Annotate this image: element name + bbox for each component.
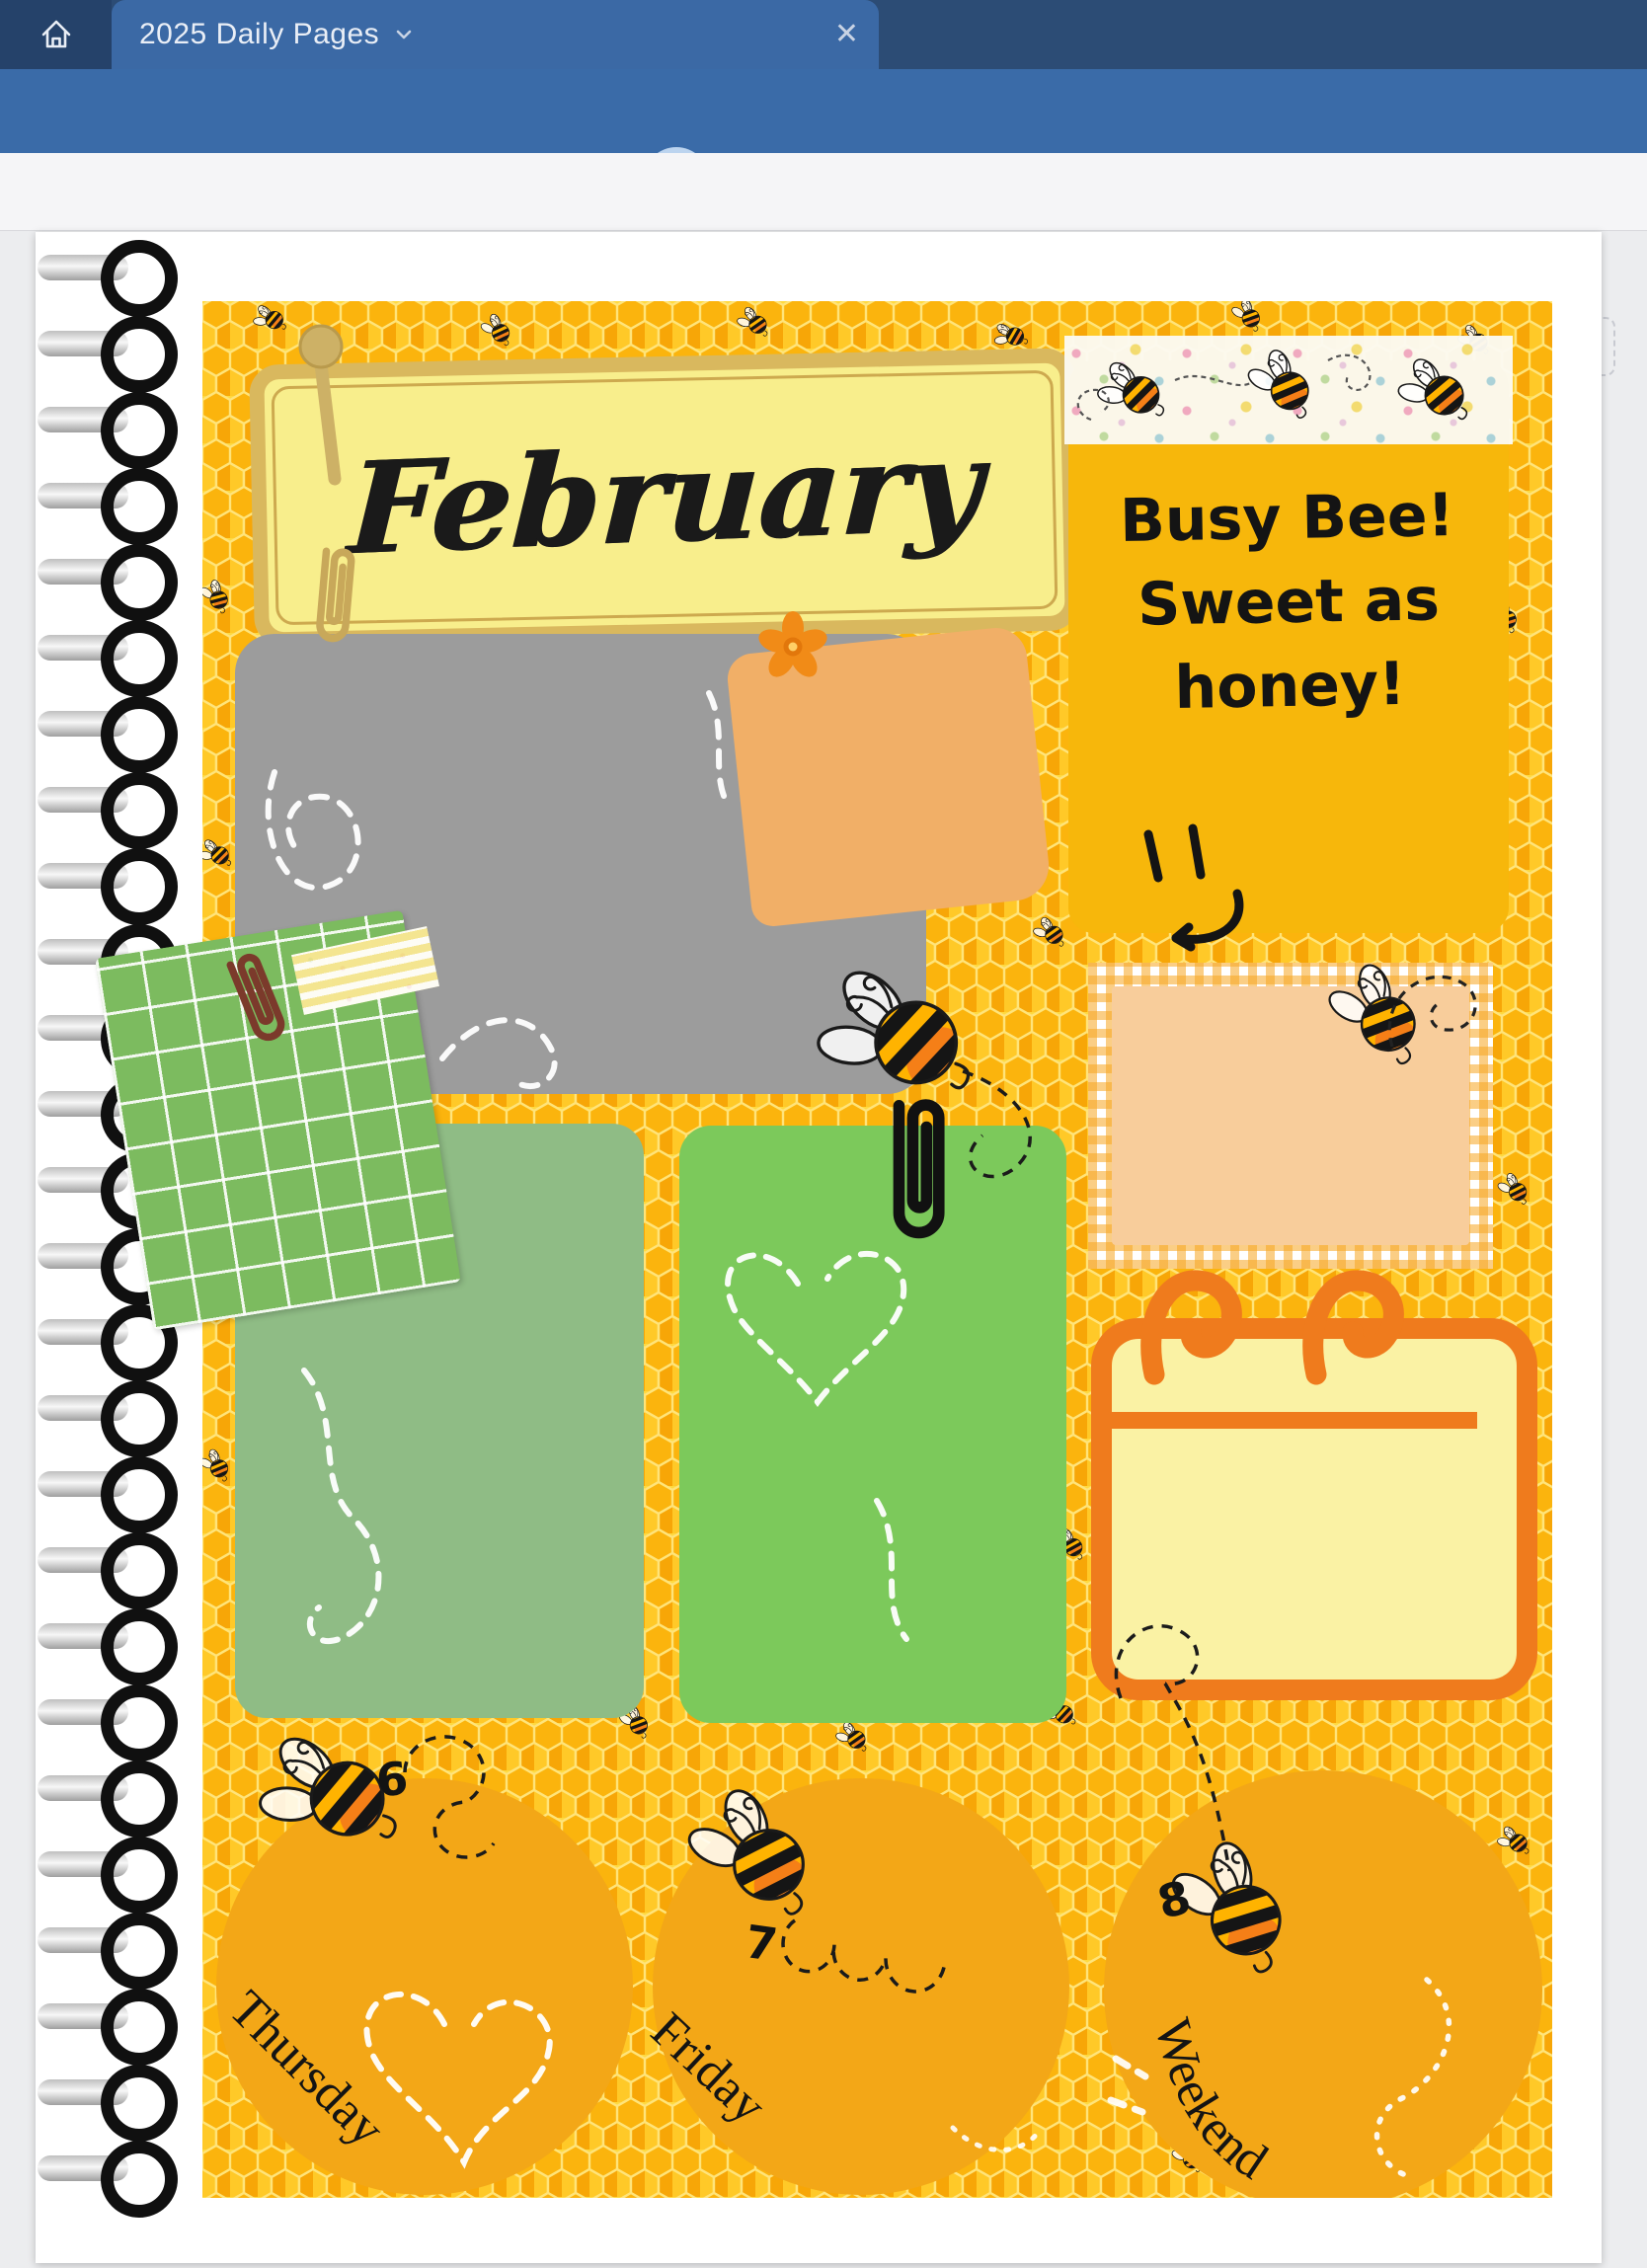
peach-sticky-note[interactable]	[725, 625, 1052, 928]
spiral-ring	[38, 2065, 166, 2120]
month-title-banner[interactable]: February	[249, 348, 1080, 647]
main-toolbar	[0, 69, 1647, 153]
spiral-ring	[38, 1837, 166, 1892]
spiral-ring	[38, 1456, 166, 1512]
spiral-ring	[38, 1380, 166, 1436]
gingham-note-inner	[1112, 986, 1469, 1245]
document-tab[interactable]: 2025 Daily Pages ✕	[112, 0, 879, 69]
month-title: February	[345, 412, 984, 585]
tab-close-button[interactable]: ✕	[834, 20, 859, 49]
spiral-ring	[38, 1532, 166, 1588]
goodnotes-app: 2025 Daily Pages ✕	[0, 0, 1647, 2268]
maroon-paperclip	[219, 938, 298, 1066]
spiral-ring	[38, 620, 166, 675]
spiral-ring	[38, 1608, 166, 1664]
spiral-ring	[38, 848, 166, 903]
quote-line: Busy Bee!	[1066, 473, 1508, 565]
spiral-ring	[38, 240, 166, 295]
spiral-ring	[38, 392, 166, 447]
spiral-ring	[38, 696, 166, 751]
date-number-6: 6	[373, 1751, 410, 1807]
chevron-down-icon[interactable]	[393, 24, 415, 45]
bright-green-box[interactable]	[679, 1126, 1066, 1723]
day-circle-thursday[interactable]	[216, 1778, 633, 2195]
day-circle-friday[interactable]	[653, 1778, 1069, 2195]
spiral-ring	[38, 1760, 166, 1816]
tools-toolbar: abc ~~~~~	[0, 153, 1647, 231]
calendar-widget[interactable]	[1091, 1318, 1537, 1700]
spiral-ring	[38, 1989, 166, 2044]
tab-bar: 2025 Daily Pages ✕	[0, 0, 1647, 69]
spiral-ring	[38, 1304, 166, 1360]
spiral-ring	[38, 468, 166, 523]
spiral-ring	[38, 544, 166, 599]
quote-text: Busy Bee! Sweet as honey!	[1066, 473, 1511, 733]
floral-washi-tape	[1064, 336, 1513, 444]
quote-sticky-note[interactable]: Busy Bee! Sweet as honey!	[1068, 360, 1509, 933]
gingham-note[interactable]	[1088, 963, 1493, 1269]
spiral-ring	[38, 1913, 166, 1968]
quote-line: Sweet as	[1067, 557, 1509, 649]
spiral-ring	[38, 1684, 166, 1740]
quote-line: honey!	[1069, 641, 1511, 733]
day-circle-weekend[interactable]	[1104, 1770, 1542, 2198]
calendar-header-divider	[1110, 1412, 1477, 1429]
spiral-ring	[38, 772, 166, 827]
spiral-ring	[38, 2141, 166, 2196]
spiral-ring	[38, 316, 166, 371]
